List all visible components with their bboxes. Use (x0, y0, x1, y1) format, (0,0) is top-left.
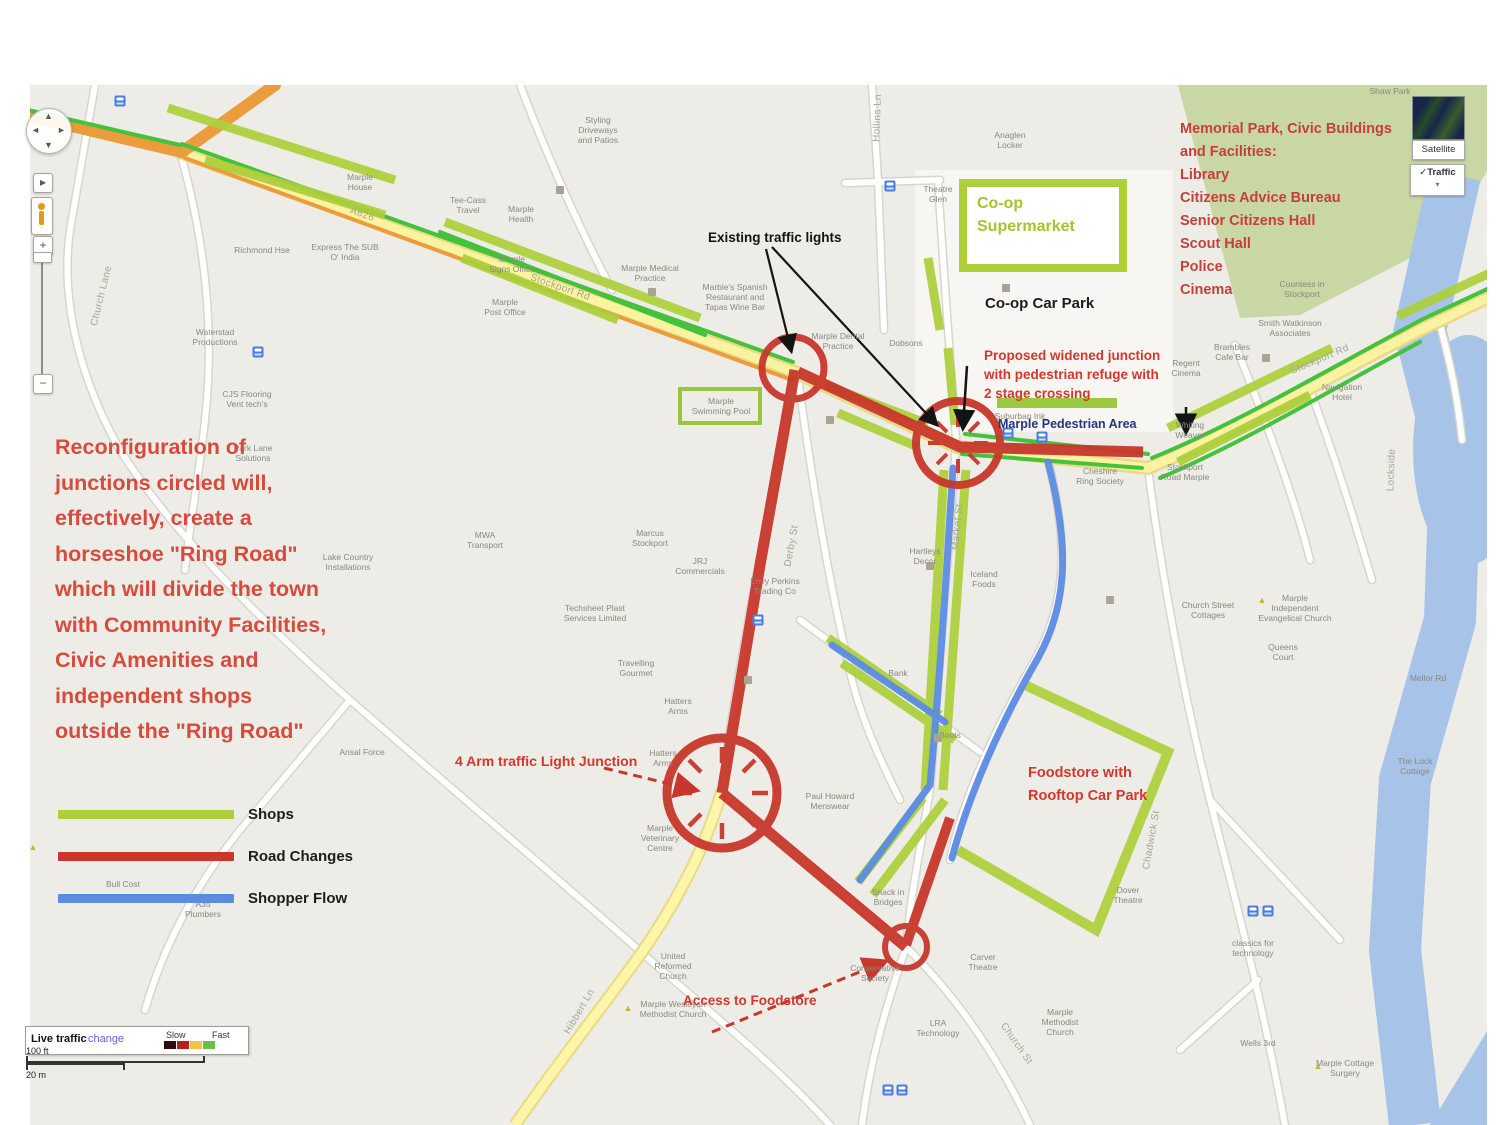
map-poi-label: Marple Veterinary Centre (641, 823, 679, 853)
traffic-slow-label: Slow (166, 1030, 186, 1040)
building-icon (926, 562, 934, 570)
map-poi-label: Regent Cinema (1171, 358, 1200, 378)
map-poi-label: Stockport Road Marple (1161, 462, 1210, 482)
bus-stop-icon (883, 1085, 894, 1096)
map-poi-label: Marple Swimming Pool (692, 396, 751, 416)
bus-stop-icon (885, 181, 896, 192)
map-poi-label: Snack in Bridges (872, 887, 905, 907)
map-poi-label: Church Street Cottages (1182, 600, 1234, 620)
annotation-reconfiguration: Reconfiguration of junctions circled wil… (55, 430, 326, 750)
zoom-out-button[interactable]: − (33, 374, 53, 394)
map-poi-label: Brambles Cafe Bar (1214, 342, 1250, 362)
map-poi-label: Anaglen Locker (994, 130, 1025, 150)
legend: Shops Road Changes Shopper Flow (58, 793, 353, 919)
annotation-foodstore: Foodstore with Rooftop Car Park (1028, 762, 1147, 808)
live-traffic-title: Live traffic (31, 1033, 87, 1045)
church-icon: ▲ (624, 1003, 633, 1013)
building-icon (744, 676, 752, 684)
church-icon: ▲ (1314, 1061, 1323, 1071)
map-poi-label: Marple Independent Evangelical Church (1258, 593, 1331, 623)
map-poi-label: Conservative Society (850, 963, 900, 983)
coop-supermarket-label: Co-op Supermarket (977, 192, 1075, 238)
legend-label-road-changes: Road Changes (248, 848, 353, 865)
annotation-proposed-junction: Proposed widened junction with pedestria… (984, 346, 1160, 403)
bus-stop-icon (115, 96, 126, 107)
map-poi-label: Smith Watkinson Associates (1258, 318, 1321, 338)
pan-up-arrow[interactable]: ▲ (44, 111, 53, 121)
legend-bar-road-changes (58, 852, 234, 861)
traffic-fast-label: Fast (212, 1030, 230, 1040)
zoom-slider-handle[interactable] (33, 252, 52, 263)
street-view-button[interactable]: ▸ (33, 173, 53, 193)
map-poi-label: Techsheet Plast Services Limited (564, 603, 626, 623)
legend-bar-shopper-flow (58, 894, 234, 903)
map-poi-label: LRA Technology (916, 1018, 959, 1038)
map-poi-label: Lake Country Installations (323, 552, 374, 572)
annotation-4arm-junction: 4 Arm traffic Light Junction (455, 753, 637, 769)
map-poi-label: The Lock Cottage (1398, 756, 1433, 776)
traffic-button-label: ✓Traffic (1419, 167, 1455, 178)
scale-bar: 100 ft 20 m (26, 1046, 205, 1080)
scale-metric-line (26, 1063, 125, 1070)
map-application-window: { "annotations": { "reconfiguration": "R… (0, 0, 1500, 1125)
satellite-button[interactable]: Satellite (1412, 140, 1465, 160)
bus-stop-icon (1037, 432, 1048, 443)
pedestrian-area-label: Marple Pedestrian Area (998, 417, 1136, 431)
map-poi-label: Boots (939, 730, 961, 740)
map-poi-label: Navigation Hotel (1322, 382, 1362, 402)
satellite-thumbnail[interactable] (1412, 96, 1465, 140)
map-poi-label: Marple Dental Practice (812, 331, 865, 351)
map-poi-label: Marple Medical Practice (621, 263, 679, 283)
bus-stop-icon (753, 615, 764, 626)
map-poi-label: Iceland Foods (970, 569, 997, 589)
map-poi-label: Hatters Arms (664, 696, 691, 716)
map-poi-label: Shaw Park (1369, 86, 1410, 96)
map-poi-label: Tee-Cass Travel (450, 195, 486, 215)
legend-row-road-changes: Road Changes (58, 835, 353, 877)
map-poi-label: Marple Methodist Church (1042, 1007, 1079, 1037)
map-poi-label: Express The SUB O' India (311, 242, 378, 262)
legend-label-shops: Shops (248, 806, 294, 823)
map-poi-label: Cheshire Ring Society (1076, 466, 1124, 486)
map-poi-label: Marble's Spanish Restaurant and Tapas Wi… (703, 282, 768, 312)
church-icon: ▲ (1258, 595, 1267, 605)
chevron-down-icon[interactable]: ▾ (1411, 180, 1464, 190)
annotation-access-foodstore: Access to Foodstore (683, 993, 817, 1008)
map-poi-label: Hatters Arms (649, 748, 676, 768)
map-poi-label: United Reformed Church (654, 951, 691, 981)
map-poi-label: JRJ Commercials (675, 556, 725, 576)
map-poi-label: Richmond Hse (234, 245, 290, 255)
building-icon (934, 734, 942, 742)
map-poi-label: Marple House (347, 172, 373, 192)
pan-down-arrow[interactable]: ▼ (44, 140, 53, 150)
building-icon (1262, 354, 1270, 362)
map-poi-label: Marple Health (508, 204, 534, 224)
pan-left-arrow[interactable]: ◄ (31, 125, 40, 135)
scale-imperial-label: 100 ft (26, 1046, 49, 1056)
map-poi-label: Marcus Stockport (632, 528, 668, 548)
live-traffic-change-link[interactable]: change (88, 1033, 124, 1045)
pegman-icon (38, 203, 45, 210)
legend-row-shopper-flow: Shopper Flow (58, 877, 353, 919)
map-poi-label: Theatre Glen (923, 184, 952, 204)
street-name-label: Lockside (1385, 448, 1398, 491)
bus-stop-icon (1248, 906, 1259, 917)
building-icon (648, 288, 656, 296)
map-poi-label: Bank (888, 668, 907, 678)
map-poi-label: Wells 3rd (1240, 1038, 1275, 1048)
zoom-slider-track[interactable] (41, 260, 43, 374)
building-icon (1002, 284, 1010, 292)
building-icon (826, 416, 834, 424)
map-poi-label: Marple Signs Office (489, 254, 535, 274)
church-icon: ▲ (29, 842, 38, 852)
map-poi-label: Marple Post Office (484, 297, 525, 317)
map-poi-label: Carver Theatre (968, 952, 997, 972)
map-poi-label: Ansal Force (339, 747, 384, 757)
map-poi-label: Dobsons (889, 338, 923, 348)
annotation-existing-lights: Existing traffic lights (708, 230, 842, 245)
pegman-button[interactable] (31, 197, 53, 235)
map-poi-label: Styling Driveways and Patios (578, 115, 618, 145)
map-poi-label: Paul Howard Menswear (806, 791, 855, 811)
map-poi-label: classics for technology (1232, 938, 1274, 958)
map-poi-label: Hartleys Decor (909, 546, 940, 566)
map-poi-label: Mellor Rd (1410, 673, 1446, 683)
legend-row-shops: Shops (58, 793, 353, 835)
pan-control[interactable]: ▲ ▼ ◄ ► (26, 108, 72, 154)
bus-stop-icon (253, 347, 264, 358)
bus-stop-icon (897, 1085, 908, 1096)
building-icon (556, 186, 564, 194)
map-poi-label: Queens Court (1268, 642, 1298, 662)
scale-imperial-line (26, 1056, 205, 1063)
map-poi-label: Envy Perkins Trading Co (750, 576, 800, 596)
bus-stop-icon (1263, 906, 1274, 917)
annotation-memorial-park: Memorial Park, Civic Buildings and Facil… (1180, 118, 1392, 302)
traffic-button[interactable]: ✓Traffic ▾ (1410, 164, 1465, 196)
pan-right-arrow[interactable]: ► (57, 125, 66, 135)
map-poi-label: Dover Theatre (1113, 885, 1142, 905)
street-name-label: Hollins Ln (871, 94, 884, 142)
legend-bar-shops (58, 810, 234, 819)
map-poi-label: Marple Cottage Surgery (1316, 1058, 1374, 1078)
legend-label-shopper-flow: Shopper Flow (248, 890, 347, 907)
map-poi-label: CJS Flooring Vent tech's (222, 389, 271, 409)
scale-metric-label: 20 m (26, 1070, 46, 1080)
coop-car-park-label: Co-op Car Park (985, 295, 1094, 312)
map-poi-label: Travelling Gourmet (618, 658, 655, 678)
map-poi-label: Whiting Weaver (1175, 420, 1204, 440)
map-poi-label: Waterstad Productions (193, 327, 238, 347)
map-poi-label: MWA Transport (467, 530, 503, 550)
building-icon (1106, 596, 1114, 604)
